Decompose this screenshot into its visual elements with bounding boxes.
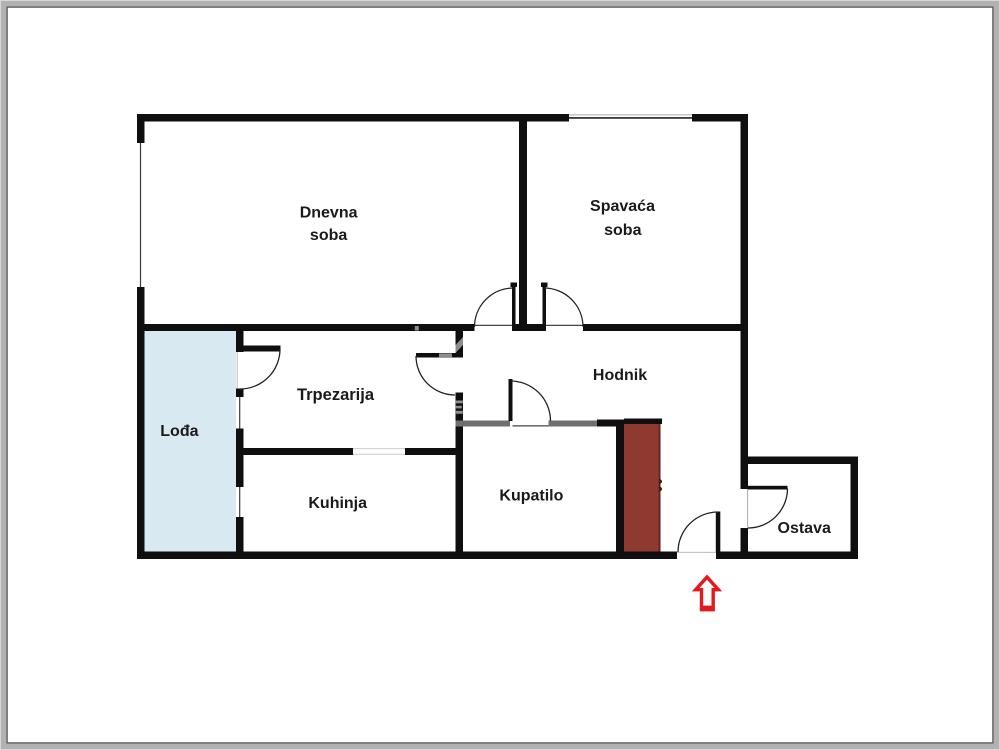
svg-text:soba: soba [310, 227, 347, 244]
svg-text:Ostava: Ostava [778, 520, 831, 537]
svg-text:Trpezarija: Trpezarija [297, 386, 375, 404]
svg-text:Dnevna: Dnevna [300, 205, 358, 222]
svg-text:Kupatilo: Kupatilo [499, 487, 563, 504]
svg-text:Hodnik: Hodnik [593, 367, 647, 384]
svg-text:soba: soba [604, 222, 641, 239]
svg-text:Lođa: Lođa [160, 423, 198, 440]
svg-text:Kuhinja: Kuhinja [308, 495, 367, 512]
svg-text:Spavaća: Spavaća [590, 198, 655, 215]
